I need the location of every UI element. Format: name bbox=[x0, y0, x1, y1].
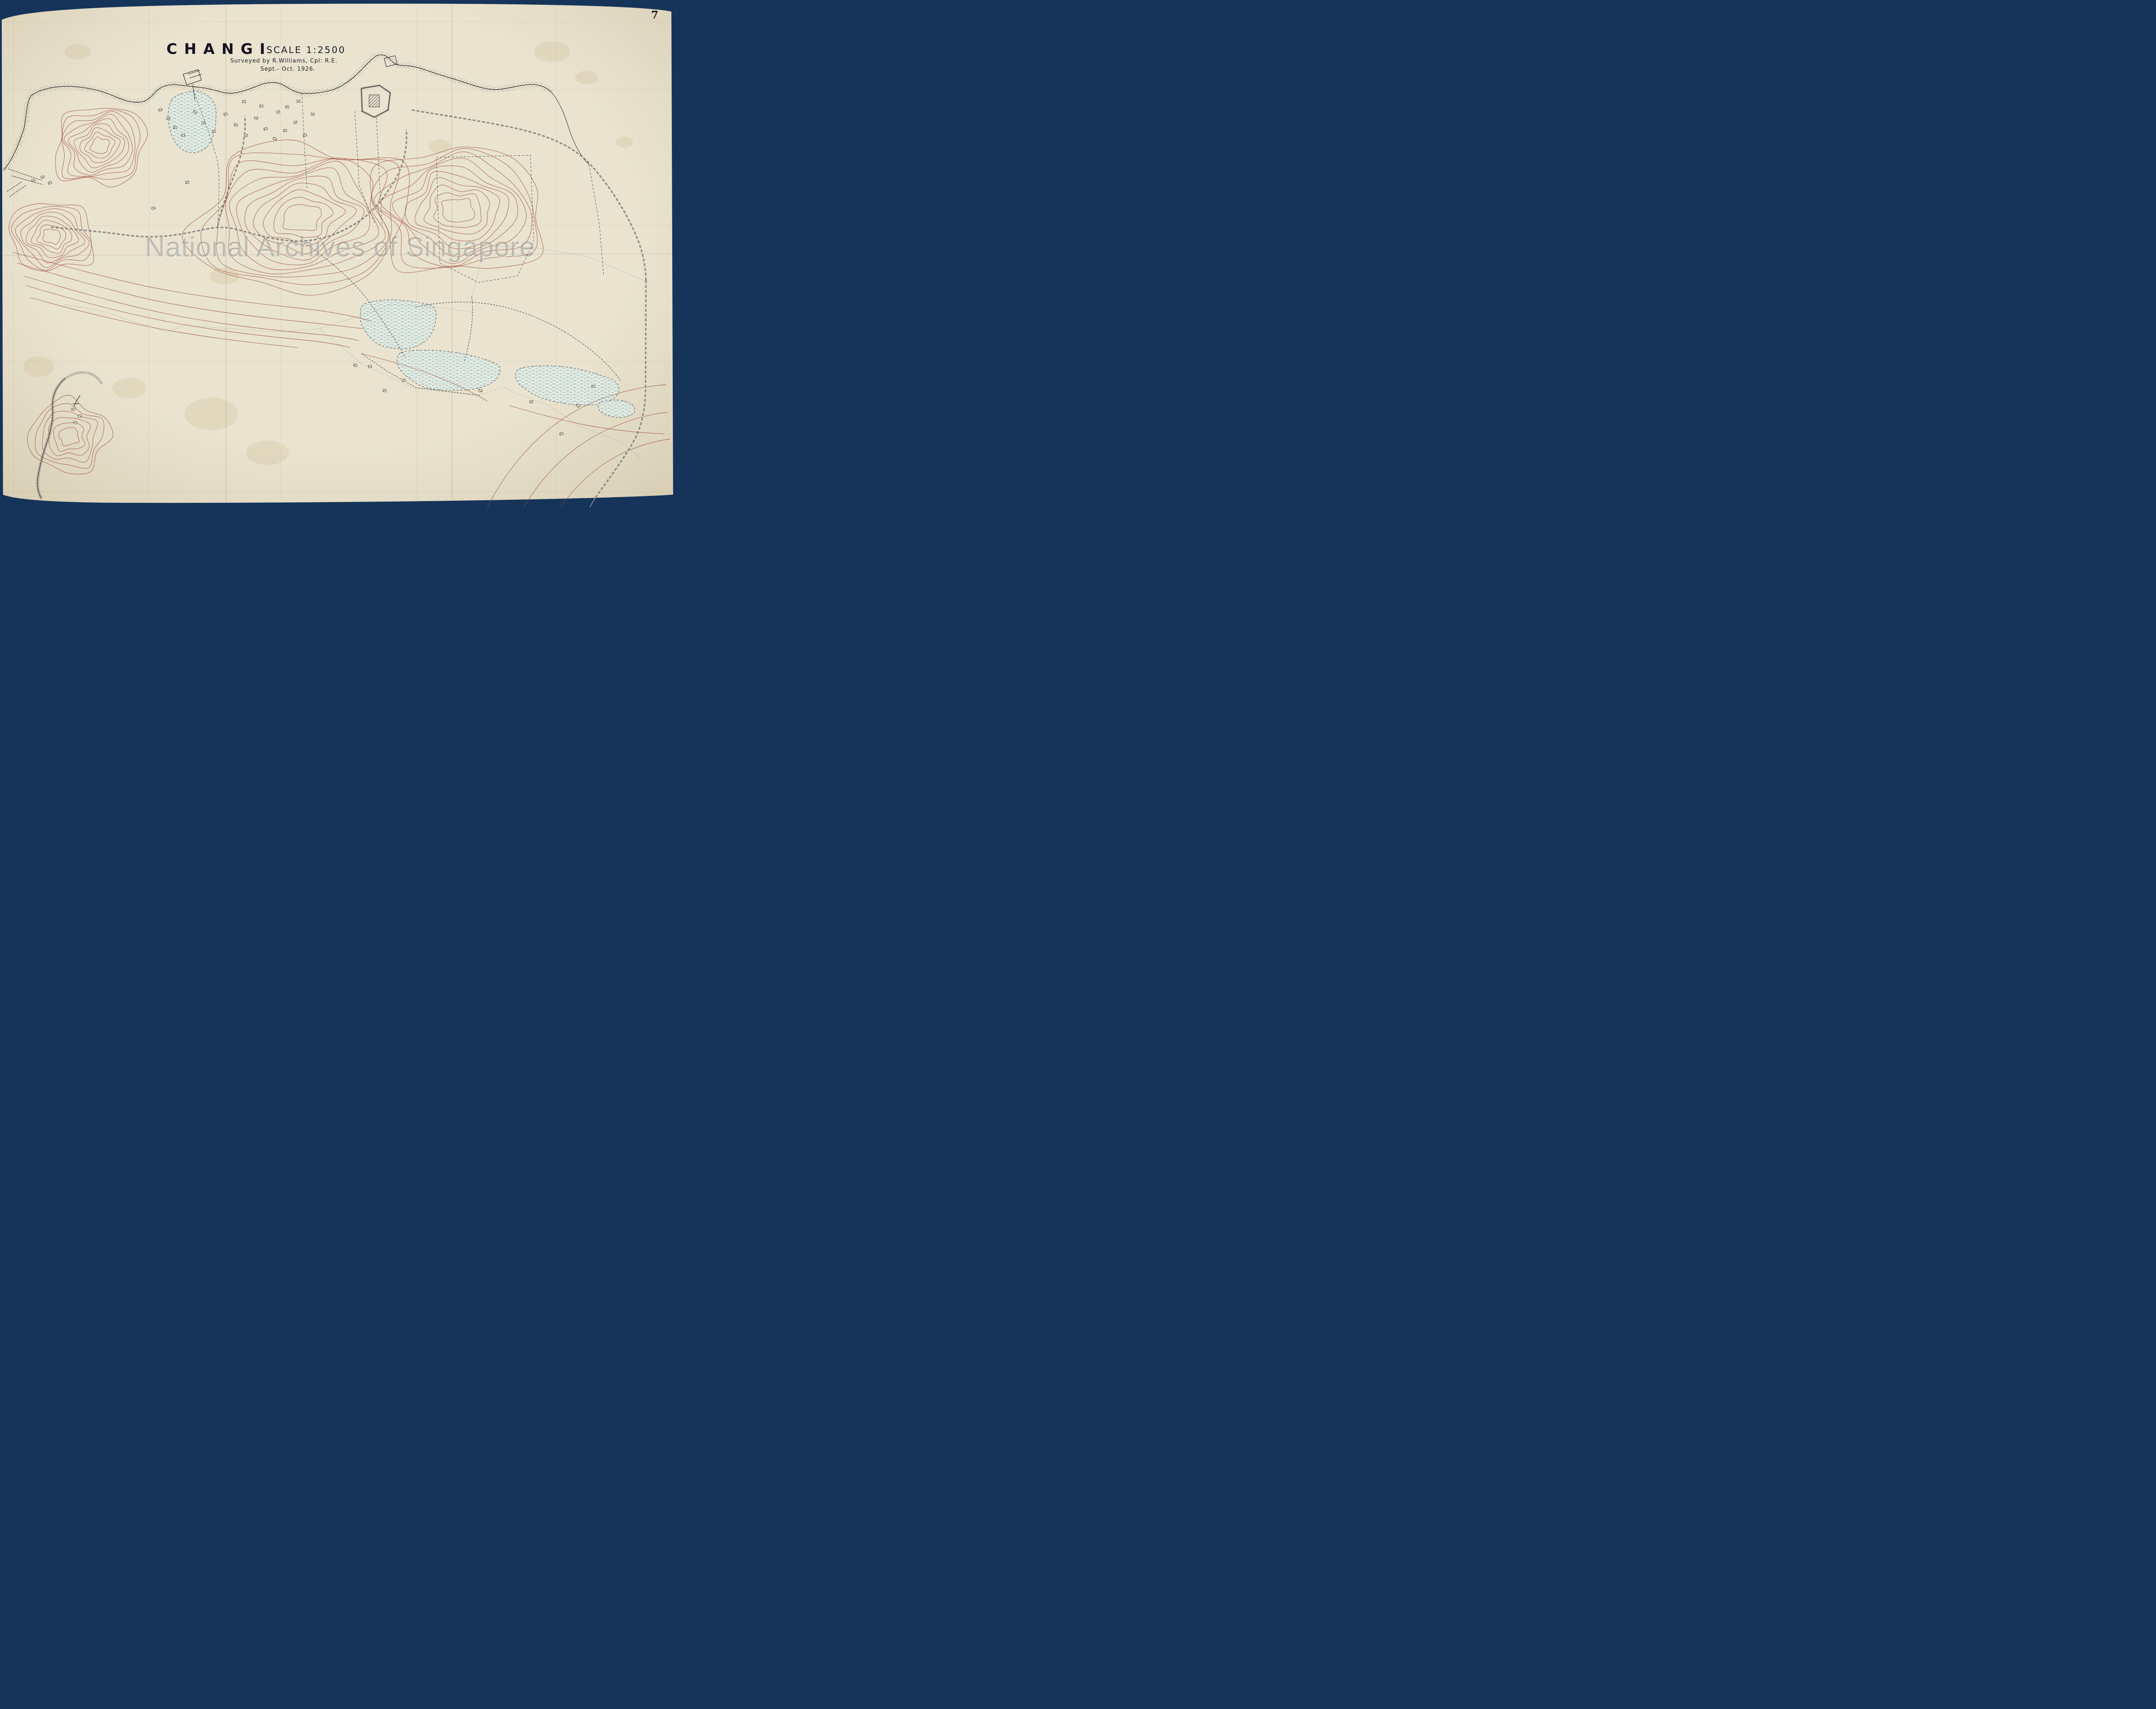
stain bbox=[575, 71, 598, 85]
stain bbox=[534, 41, 570, 62]
map-scale: SCALE 1:2500 bbox=[266, 45, 346, 55]
building bbox=[254, 117, 258, 119]
stain bbox=[185, 398, 238, 430]
building bbox=[202, 121, 206, 124]
stain bbox=[246, 441, 289, 465]
building bbox=[402, 379, 405, 382]
building bbox=[185, 181, 189, 184]
sheet-number: 7 bbox=[651, 9, 658, 21]
building bbox=[294, 121, 298, 124]
building bbox=[41, 176, 45, 179]
building bbox=[592, 385, 595, 388]
stain bbox=[112, 378, 147, 398]
scanned-map-sheet: CHANGI SCALE 1:2500 Surveyed by R.Willia… bbox=[0, 0, 676, 508]
stain bbox=[429, 140, 451, 154]
building bbox=[173, 126, 177, 129]
map-title: CHANGI bbox=[166, 41, 272, 58]
building bbox=[212, 130, 216, 133]
map-survey-dates: Sept.- Oct. 1926. bbox=[260, 66, 316, 72]
building bbox=[244, 134, 248, 137]
building bbox=[479, 389, 483, 392]
building bbox=[530, 401, 533, 403]
building bbox=[242, 100, 246, 103]
map-surveyor: Surveyed by R.Williams, Cpl: R.E. bbox=[230, 58, 338, 64]
stain bbox=[23, 356, 54, 377]
building bbox=[260, 104, 263, 107]
stain bbox=[65, 44, 91, 60]
archives-watermark: National Archives of Singapore bbox=[17, 231, 663, 263]
stain bbox=[616, 137, 633, 148]
building bbox=[283, 129, 287, 132]
building bbox=[297, 100, 300, 103]
building bbox=[383, 389, 387, 392]
building bbox=[72, 408, 75, 411]
